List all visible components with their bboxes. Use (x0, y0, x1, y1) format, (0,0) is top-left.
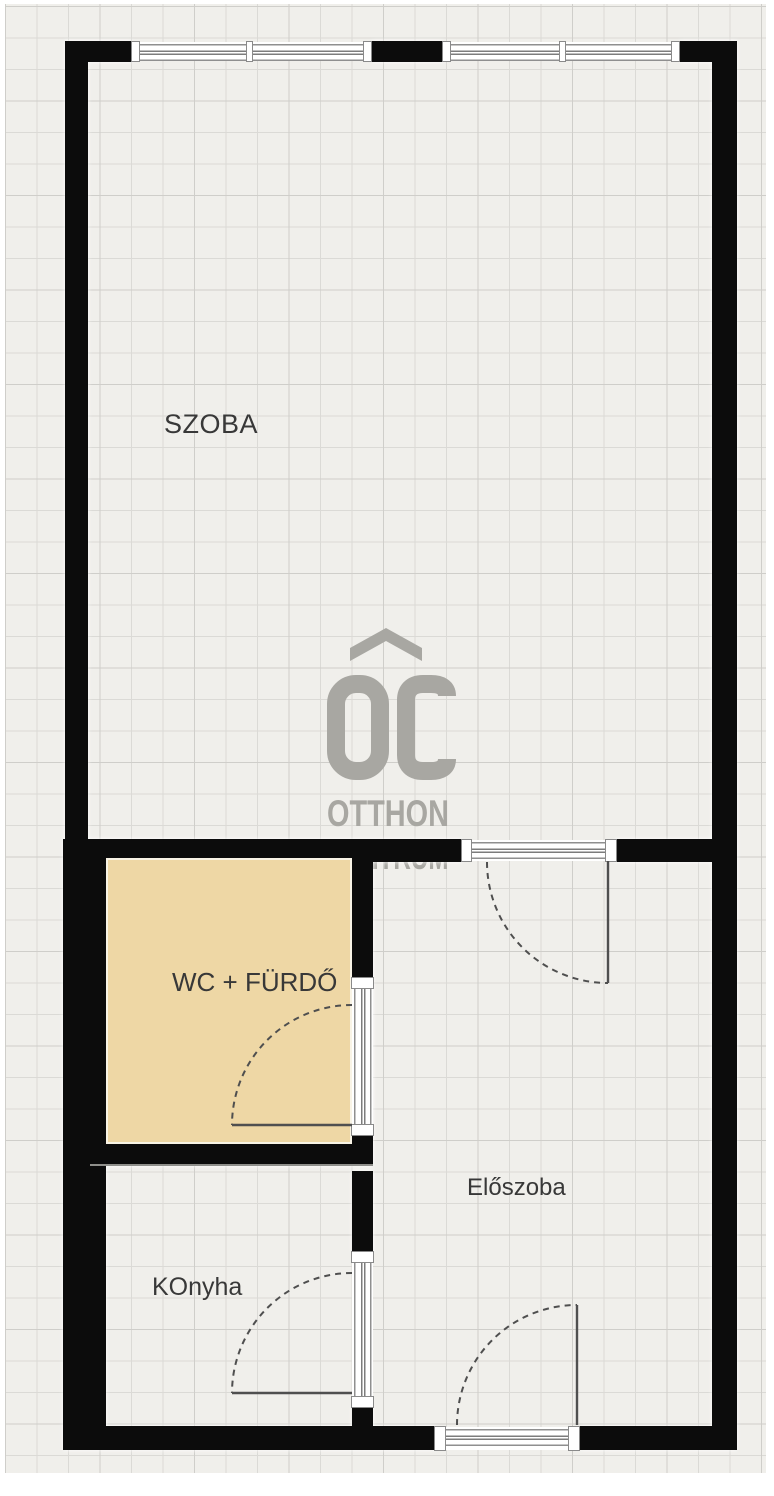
door-konyha (232, 1273, 352, 1393)
room-label-szoba: SZOBA (164, 409, 258, 440)
door-swing-arc (457, 1305, 577, 1425)
room-label-wc-furdo: WC + FÜRDŐ (172, 967, 337, 998)
door-bathroom (232, 1005, 352, 1125)
door-swing-arc (487, 862, 608, 983)
page-edge-bottom (0, 1473, 774, 1496)
door-symbols-layer (0, 0, 774, 1496)
door-swing-arc (232, 1005, 352, 1125)
page-edge-top (0, 0, 774, 4)
page-edge-left (0, 0, 5, 1496)
floorplan-canvas: OTTHON CENTRUM (0, 0, 774, 1496)
door-hall (487, 861, 608, 983)
door-entrance (457, 1305, 577, 1425)
door-swing-arc (232, 1273, 352, 1393)
room-label-konyha: KOnyha (152, 1273, 242, 1302)
room-label-eloszoba: Előszoba (467, 1174, 566, 1202)
page-edge-right (766, 0, 774, 1496)
